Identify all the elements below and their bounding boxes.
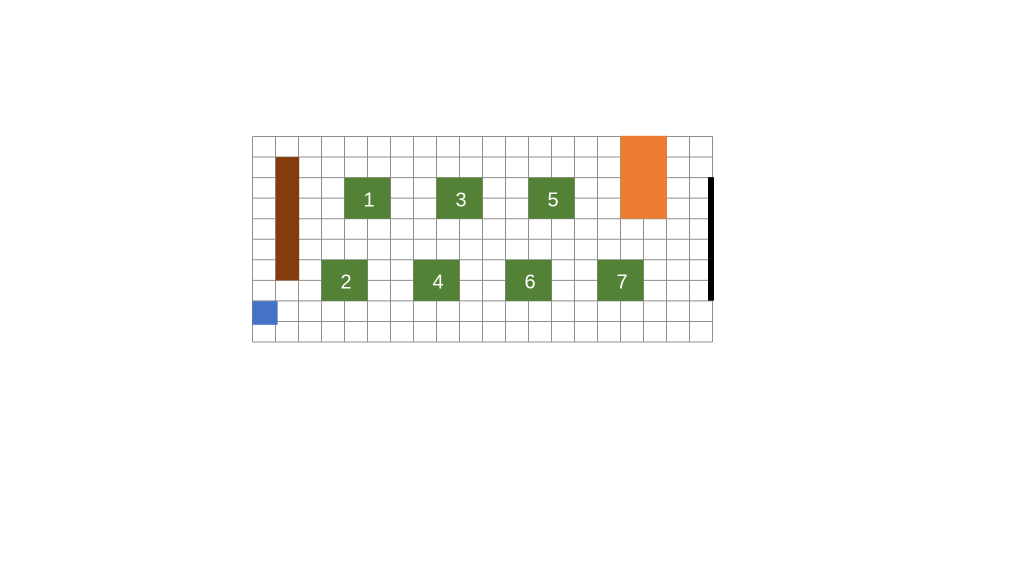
svg-text:3: 3: [456, 190, 467, 212]
svg-text:1: 1: [364, 190, 375, 212]
svg-text:2: 2: [341, 272, 352, 294]
svg-text:4: 4: [433, 272, 444, 294]
svg-text:6: 6: [525, 272, 536, 294]
svg-text:7: 7: [617, 272, 628, 294]
svg-text:5: 5: [548, 190, 559, 212]
